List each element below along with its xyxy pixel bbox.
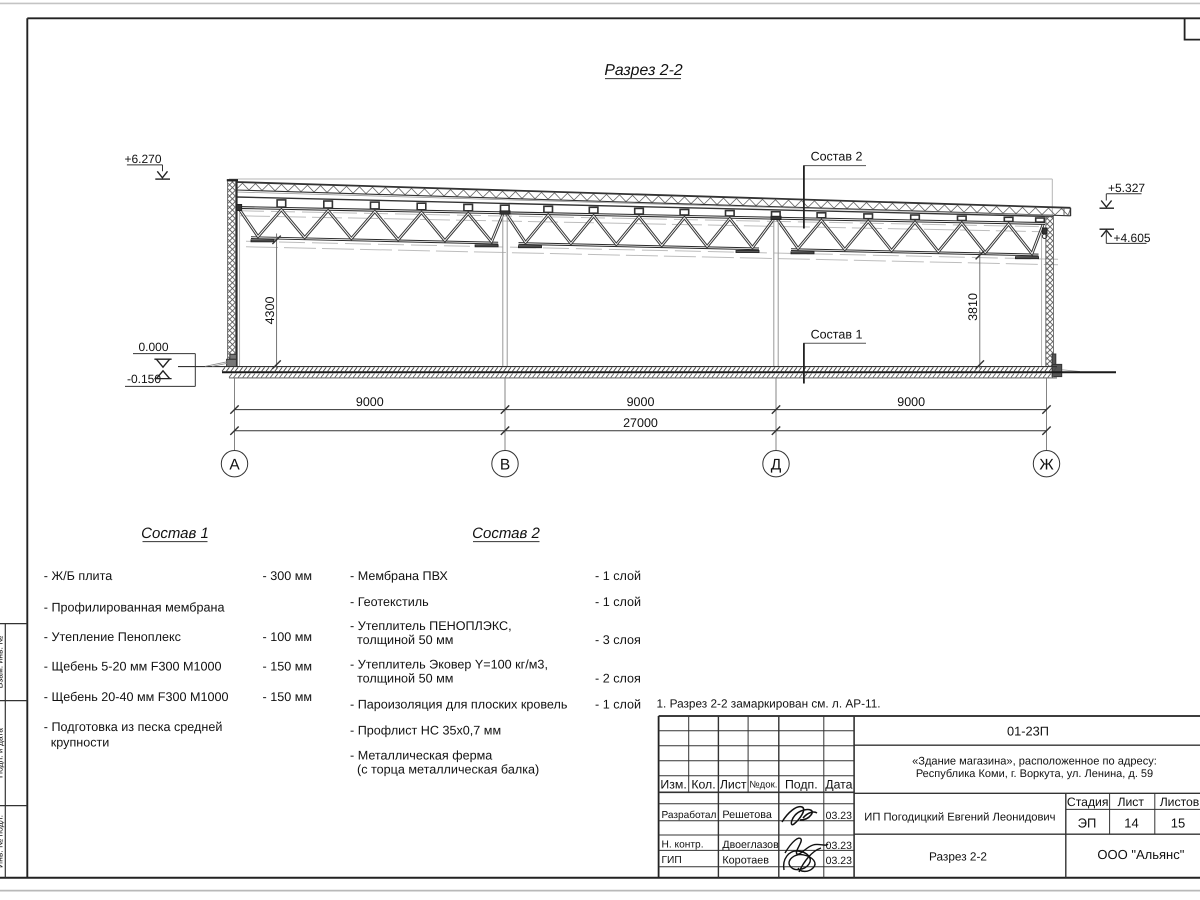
svg-text:9000: 9000 <box>356 395 384 409</box>
svg-text:- 1 слой: - 1 слой <box>595 595 641 609</box>
svg-text:№док.: №док. <box>749 779 777 790</box>
svg-text:- 2 слоя: - 2 слоя <box>595 672 641 686</box>
svg-text:- 100 мм: - 100 мм <box>263 630 313 644</box>
svg-text:Взам. инв. №: Взам. инв. № <box>0 636 5 689</box>
svg-text:- Ж/Б плита: - Ж/Б плита <box>44 569 112 583</box>
svg-text:Разрез 2-2: Разрез 2-2 <box>929 849 987 863</box>
svg-text:9000: 9000 <box>627 395 655 409</box>
svg-text:Состав 2: Состав 2 <box>811 150 863 164</box>
svg-text:Дата: Дата <box>825 777 852 791</box>
svg-text:ООО "Альянс": ООО "Альянс" <box>1097 847 1184 862</box>
svg-text:- Мембрана ПВХ: - Мембрана ПВХ <box>350 569 448 583</box>
svg-text:Лист: Лист <box>1117 795 1144 809</box>
svg-text:- Пароизоляция для плоских кро: - Пароизоляция для плоских кровель <box>350 698 568 712</box>
svg-text:Разрез 2-2: Разрез 2-2 <box>604 62 682 79</box>
svg-text:- 150 мм: - 150 мм <box>263 660 313 674</box>
svg-text:9000: 9000 <box>897 395 925 409</box>
svg-text:3810: 3810 <box>966 293 980 321</box>
svg-text:толщиной 50 мм: толщиной 50 мм <box>350 633 453 647</box>
svg-text:Состав 1: Состав 1 <box>141 525 209 542</box>
svg-text:4300: 4300 <box>263 297 277 325</box>
svg-text:- Подготовка из песка средней: - Подготовка из песка средней <box>44 720 223 734</box>
svg-text:Д: Д <box>771 456 782 473</box>
svg-text:+4.605: +4.605 <box>1114 231 1151 245</box>
svg-text:«Здание магазина», расположенн: «Здание магазина», расположенное по адре… <box>912 756 1157 768</box>
svg-text:Ж: Ж <box>1039 456 1054 473</box>
svg-text:- 3 слоя: - 3 слоя <box>595 633 641 647</box>
svg-text:Кол.: Кол. <box>691 777 715 791</box>
svg-text:Подп. и дата: Подп. и дата <box>0 728 5 778</box>
svg-text:- Щебень 20-40 мм F300 М1000: - Щебень 20-40 мм F300 М1000 <box>44 690 229 704</box>
svg-text:толщиной 50 мм: толщиной 50 мм <box>350 672 453 686</box>
svg-text:(с торца металлическая балка): (с торца металлическая балка) <box>350 763 539 777</box>
svg-text:Листов: Листов <box>1160 795 1200 809</box>
svg-text:Коротаев: Коротаев <box>722 854 769 866</box>
svg-text:Изм.: Изм. <box>660 777 686 791</box>
svg-text:+5.327: +5.327 <box>1108 181 1145 195</box>
svg-text:ИП Погодицкий Евгений Леонидов: ИП Погодицкий Евгений Леонидович <box>864 811 1055 823</box>
svg-text:- 1 слой: - 1 слой <box>595 569 641 583</box>
svg-text:01-23П: 01-23П <box>1007 724 1049 739</box>
svg-text:Инв. № подл.: Инв. № подл. <box>0 815 5 868</box>
svg-text:Состав 2: Состав 2 <box>472 525 540 542</box>
svg-text:1. Разрез 2-2 замаркирован см.: 1. Разрез 2-2 замаркирован см. л. АР-11. <box>657 697 881 711</box>
svg-text:ЭП: ЭП <box>1078 816 1097 831</box>
svg-text:Подп.: Подп. <box>785 777 818 791</box>
svg-text:03.23: 03.23 <box>826 810 852 822</box>
svg-text:- Профлист НС 35х0,7 мм: - Профлист НС 35х0,7 мм <box>350 724 501 738</box>
svg-text:Решетова: Решетова <box>722 809 772 821</box>
svg-text:- 1 слой: - 1 слой <box>595 698 641 712</box>
svg-text:ГИП: ГИП <box>662 855 682 866</box>
svg-text:Стадия: Стадия <box>1067 795 1109 809</box>
svg-text:- Профилированная мембрана: - Профилированная мембрана <box>44 601 225 615</box>
svg-text:Состав 1: Состав 1 <box>811 328 863 342</box>
svg-text:- 300 мм: - 300 мм <box>263 569 313 583</box>
svg-text:- Геотекстиль: - Геотекстиль <box>350 595 429 609</box>
svg-text:- Металлическая ферма: - Металлическая ферма <box>350 749 492 763</box>
svg-text:Двоеглазов: Двоеглазов <box>722 839 779 851</box>
svg-text:крупности: крупности <box>44 735 110 749</box>
svg-text:15: 15 <box>1171 816 1185 831</box>
svg-text:Республика Коми, г. Воркута, у: Республика Коми, г. Воркута, ул. Ленина,… <box>916 768 1153 780</box>
svg-text:03.23: 03.23 <box>826 840 852 852</box>
svg-text:+6.270: +6.270 <box>124 152 161 166</box>
svg-text:14: 14 <box>1124 816 1138 831</box>
svg-text:- Утеплитель ПЕНОПЛЭКС,: - Утеплитель ПЕНОПЛЭКС, <box>350 619 512 633</box>
svg-text:- Щебень 5-20 мм F300 М1000: - Щебень 5-20 мм F300 М1000 <box>44 660 222 674</box>
svg-text:03.23: 03.23 <box>826 855 852 867</box>
svg-text:В: В <box>500 456 510 473</box>
svg-text:- 150 мм: - 150 мм <box>263 690 313 704</box>
svg-text:- Утепление Пеноплекс: - Утепление Пеноплекс <box>44 630 181 644</box>
svg-text:- Утеплитель Эковер Y=100 кг/м: - Утеплитель Эковер Y=100 кг/м3, <box>350 658 548 672</box>
svg-text:27000: 27000 <box>623 416 658 430</box>
svg-text:А: А <box>229 456 240 473</box>
svg-text:Лист: Лист <box>720 777 747 791</box>
svg-text:Разработал: Разработал <box>662 810 717 821</box>
svg-text:Н. контр.: Н. контр. <box>662 839 704 850</box>
svg-text:0.000: 0.000 <box>138 340 168 354</box>
